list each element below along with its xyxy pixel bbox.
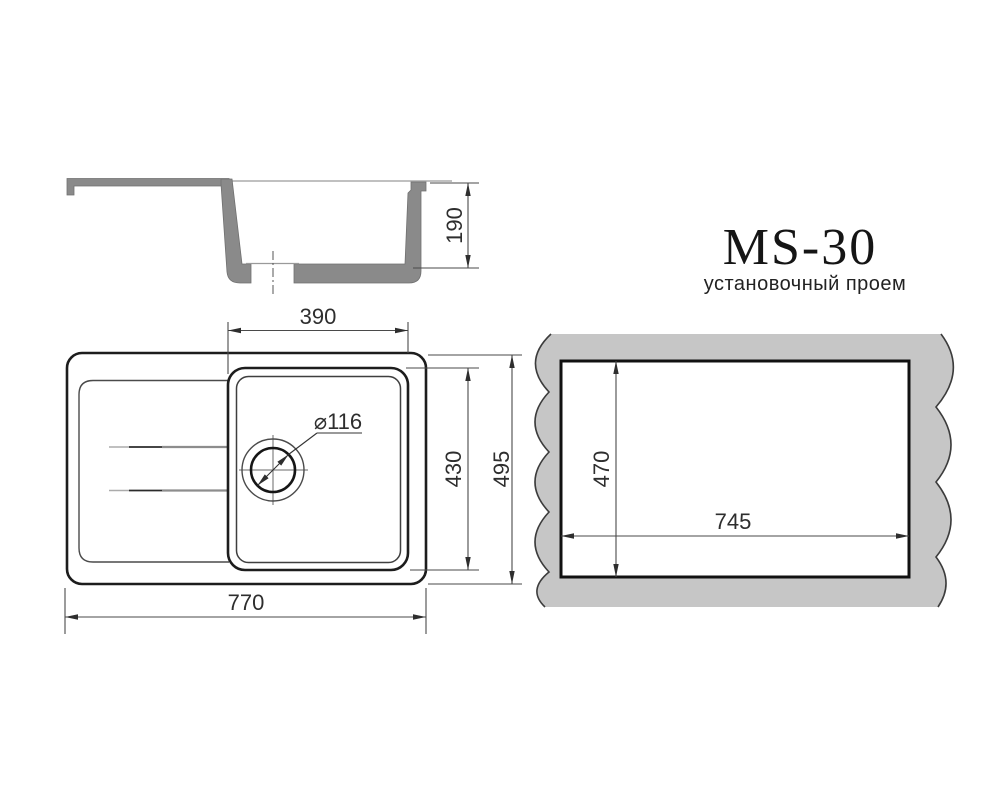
plan-view: ⌀116 390 430 [65, 304, 522, 634]
dim-label-depth: 190 [442, 207, 467, 244]
section-view: 190 [67, 179, 479, 298]
dim-overall-width-770: 770 [65, 588, 426, 634]
arrow-right-icon [395, 328, 408, 333]
arrow-down-icon [465, 557, 470, 570]
section-bowl-left-wall [221, 179, 251, 283]
dim-label-bowl-width: 390 [300, 304, 337, 329]
drawing-sheet: 190 [0, 0, 1000, 797]
arrow-up-icon [465, 368, 470, 381]
dim-label-cutout-width: 745 [715, 509, 752, 534]
section-drainboard [67, 179, 229, 196]
dim-label-bowl-depth: 430 [441, 451, 466, 488]
dim-depth-190: 190 [413, 183, 479, 268]
arrow-left-icon [65, 614, 78, 619]
title-block: MS-30 установочный проем [704, 219, 907, 295]
section-bowl-right-wall [294, 182, 426, 283]
sink-technical-drawing: 190 [0, 0, 1000, 797]
model-subtitle: установочный проем [704, 273, 907, 295]
arrow-right-icon [413, 614, 426, 619]
dim-label-drain-diameter: ⌀116 [314, 409, 362, 434]
dim-label-overall-depth: 495 [489, 451, 514, 488]
arrow-up-icon [465, 183, 470, 196]
dim-label-cutout-height: 470 [589, 451, 614, 488]
opening-view: 470 745 [535, 334, 953, 607]
bowl-outline [228, 368, 408, 570]
arrow-down-icon [509, 571, 514, 584]
dim-label-overall-width: 770 [228, 590, 265, 615]
arrow-left-icon [228, 328, 241, 333]
arrow-down-icon [465, 255, 470, 268]
arrow-up-icon [509, 355, 514, 368]
model-title: MS-30 [723, 219, 877, 276]
